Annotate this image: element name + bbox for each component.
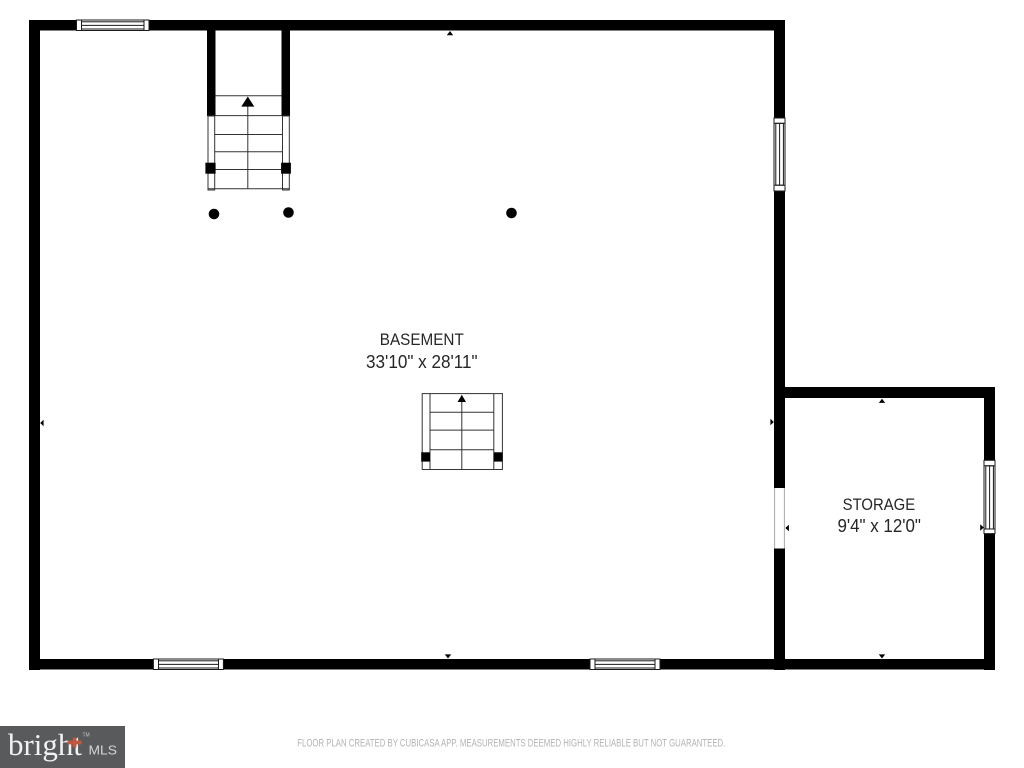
svg-text:9'4" x 12'0": 9'4" x 12'0"	[837, 516, 921, 536]
svg-text:MLS: MLS	[89, 744, 118, 758]
svg-text:FLOOR PLAN CREATED BY CUBICASA: FLOOR PLAN CREATED BY CUBICASA APP. MEAS…	[297, 738, 725, 750]
svg-text:33'10" x 28'11": 33'10" x 28'11"	[366, 352, 478, 372]
svg-text:STORAGE: STORAGE	[843, 495, 916, 514]
svg-text:bright: bright	[8, 727, 82, 762]
svg-text:BASEMENT: BASEMENT	[380, 330, 464, 349]
svg-text:TM: TM	[83, 733, 90, 739]
